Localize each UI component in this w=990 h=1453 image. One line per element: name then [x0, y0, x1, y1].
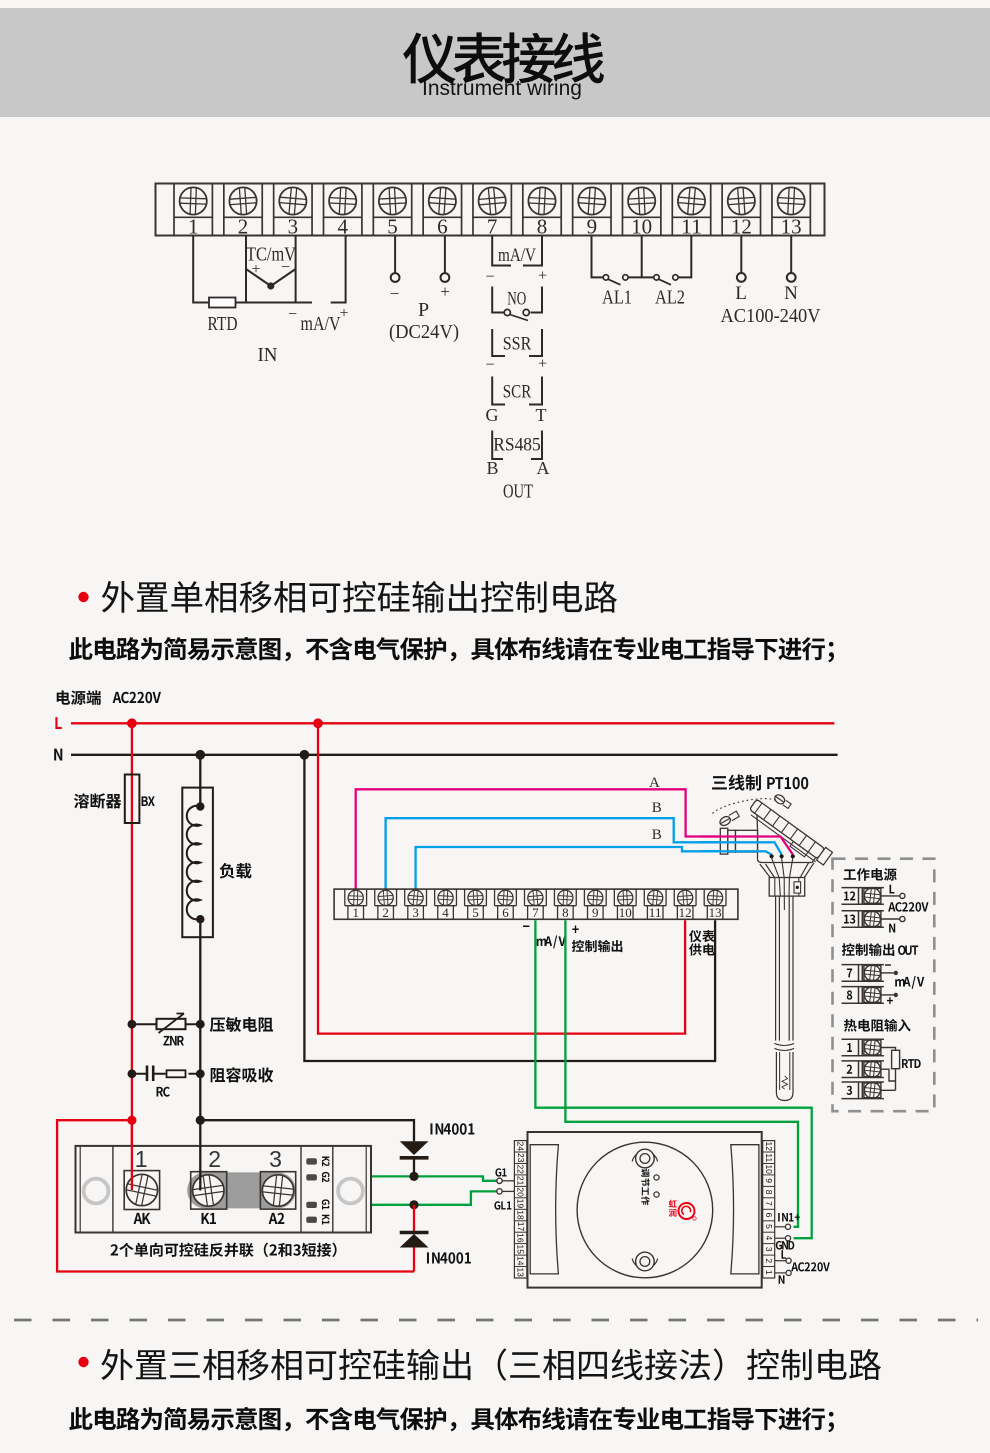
svg-text:5: 5 — [387, 214, 398, 238]
svg-text:1: 1 — [135, 1146, 148, 1172]
svg-text:1: 1 — [188, 214, 199, 238]
svg-text:12: 12 — [679, 905, 692, 920]
svg-text:17: 17 — [516, 1222, 526, 1232]
svg-text:Instrument wiring: Instrument wiring — [422, 77, 582, 100]
svg-text:T: T — [536, 405, 547, 425]
svg-text:20: 20 — [516, 1187, 526, 1197]
svg-text:G: G — [486, 405, 499, 425]
svg-text:15: 15 — [516, 1245, 526, 1255]
svg-text:B: B — [652, 827, 662, 843]
svg-text:AL2: AL2 — [655, 287, 685, 309]
svg-text:3: 3 — [288, 214, 299, 238]
svg-text:3: 3 — [764, 1247, 774, 1252]
svg-text:6: 6 — [502, 905, 509, 920]
svg-text:16: 16 — [516, 1233, 526, 1243]
svg-text:6: 6 — [437, 214, 448, 238]
svg-text:14: 14 — [516, 1256, 526, 1266]
svg-text:−: − — [281, 259, 290, 276]
svg-text:9: 9 — [592, 905, 599, 920]
svg-text:3: 3 — [269, 1146, 282, 1172]
svg-text:9: 9 — [764, 1178, 774, 1183]
svg-text:−: − — [485, 357, 494, 374]
svg-text:1: 1 — [764, 1270, 774, 1275]
svg-text:2: 2 — [764, 1258, 774, 1263]
svg-text:L: L — [735, 283, 747, 304]
svg-text:(DC24V): (DC24V) — [389, 321, 459, 343]
svg-text:+: + — [339, 305, 348, 322]
svg-text:11: 11 — [649, 905, 662, 920]
svg-text:OUT: OUT — [503, 481, 533, 503]
svg-text:−: − — [390, 284, 400, 303]
svg-text:B: B — [486, 458, 498, 478]
svg-text:RS485: RS485 — [493, 435, 541, 456]
svg-text:4: 4 — [764, 1236, 774, 1241]
svg-text:P: P — [418, 299, 429, 321]
svg-text:NO: NO — [507, 289, 526, 310]
svg-text:A: A — [537, 458, 550, 478]
svg-text:12: 12 — [764, 1142, 774, 1152]
svg-text:RTD: RTD — [208, 313, 238, 335]
svg-text:−: − — [485, 269, 494, 286]
svg-text:8: 8 — [537, 214, 548, 238]
svg-text:23: 23 — [516, 1153, 526, 1163]
svg-text:AL1: AL1 — [602, 287, 632, 309]
svg-text:13: 13 — [781, 214, 802, 238]
svg-text:−: − — [288, 306, 297, 323]
svg-text:2: 2 — [238, 214, 249, 238]
svg-text:5: 5 — [472, 905, 479, 920]
svg-text:9: 9 — [587, 214, 598, 238]
svg-text:B: B — [652, 800, 662, 816]
svg-text:SCR: SCR — [503, 382, 532, 403]
svg-text:11: 11 — [681, 214, 702, 238]
svg-text:4: 4 — [337, 214, 348, 238]
svg-text:13: 13 — [516, 1267, 526, 1277]
svg-text:SSR: SSR — [503, 334, 532, 355]
svg-text:7: 7 — [532, 905, 539, 920]
svg-text:A: A — [649, 775, 660, 791]
svg-text:1: 1 — [352, 905, 359, 920]
svg-text:AC100-240V: AC100-240V — [721, 305, 822, 327]
svg-text:13: 13 — [709, 905, 722, 920]
svg-text:7: 7 — [487, 214, 498, 238]
svg-text:mA/V: mA/V — [498, 245, 536, 266]
svg-text:+: + — [440, 282, 450, 301]
svg-text:4: 4 — [442, 905, 449, 920]
svg-text:18: 18 — [516, 1210, 526, 1220]
svg-text:+: + — [538, 356, 547, 373]
svg-text:8: 8 — [562, 905, 569, 920]
svg-text:12: 12 — [731, 214, 752, 238]
svg-text:10: 10 — [619, 905, 632, 920]
svg-text:21: 21 — [516, 1176, 526, 1186]
svg-text:IN: IN — [258, 344, 278, 366]
svg-text:24: 24 — [516, 1142, 526, 1152]
svg-text:11: 11 — [764, 1153, 774, 1162]
svg-text:6: 6 — [764, 1213, 774, 1218]
svg-text:+: + — [538, 268, 547, 285]
svg-text:10: 10 — [764, 1164, 774, 1174]
svg-text:7: 7 — [764, 1201, 774, 1206]
svg-text:19: 19 — [516, 1199, 526, 1209]
svg-text:22: 22 — [516, 1164, 526, 1174]
svg-text:3: 3 — [412, 905, 419, 920]
svg-text:2: 2 — [382, 905, 389, 920]
svg-text:mA/V: mA/V — [301, 313, 341, 335]
svg-text:5: 5 — [764, 1224, 774, 1229]
svg-text:+: + — [251, 261, 260, 278]
svg-text:2: 2 — [208, 1146, 221, 1172]
svg-text:8: 8 — [764, 1190, 774, 1195]
svg-text:10: 10 — [631, 214, 652, 238]
svg-text:N: N — [784, 283, 798, 304]
